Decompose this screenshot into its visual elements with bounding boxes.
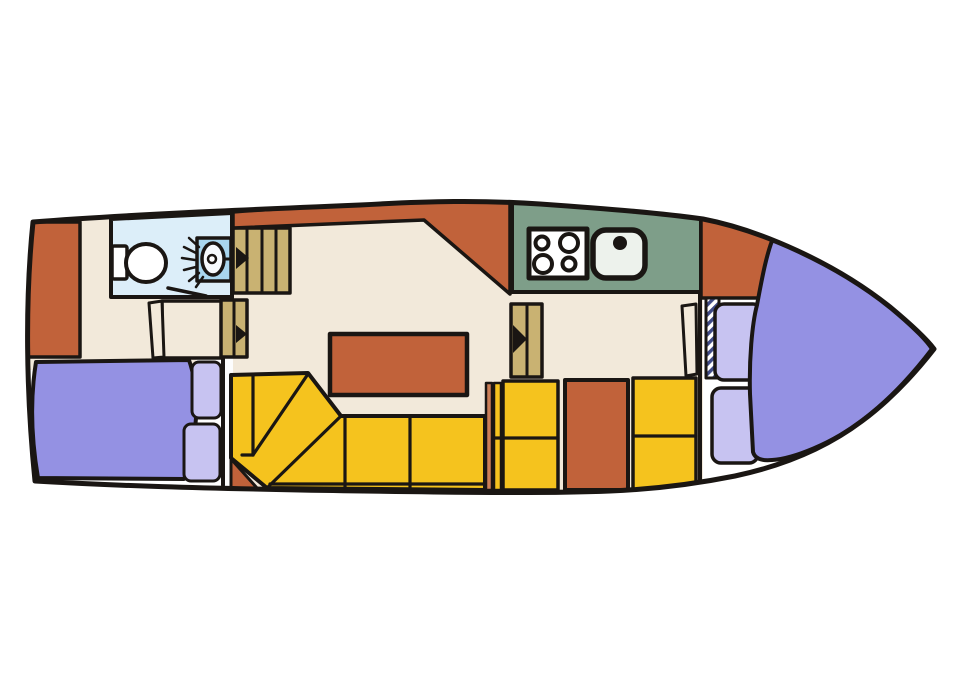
bow-v-berth	[750, 236, 932, 460]
bow-door-leaf	[682, 304, 697, 376]
boat-floorplan	[0, 0, 960, 679]
mid-berth-port	[503, 381, 558, 490]
mid-berth-starboard	[633, 378, 696, 490]
aft-bed-pillow-top	[192, 362, 221, 418]
salon-table	[330, 334, 467, 395]
shower-drain	[208, 255, 216, 263]
toilet-bowl	[126, 244, 166, 282]
aft-bed-pillow-bottom	[184, 424, 220, 481]
cabinet-door	[565, 380, 628, 490]
galley-sink-drain	[613, 236, 627, 250]
aft-cabin-door-panel	[162, 301, 223, 358]
aft-cabin-door-leaf	[149, 301, 164, 358]
berth-trim-strip	[486, 383, 492, 490]
boat-floorplan-canvas	[0, 0, 960, 679]
aft-double-bed	[32, 360, 196, 479]
